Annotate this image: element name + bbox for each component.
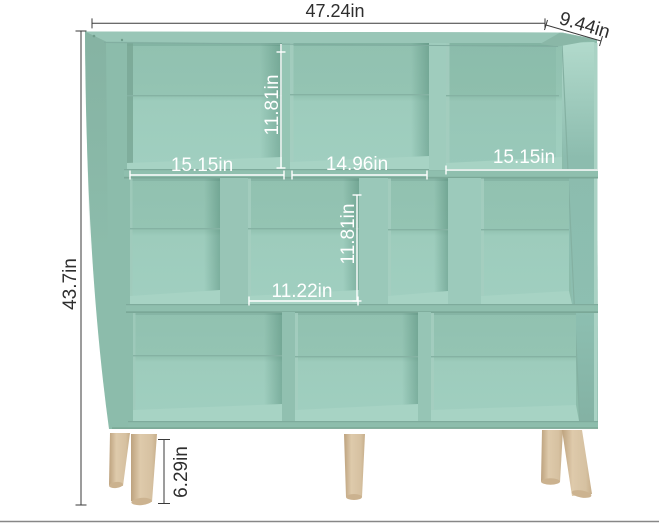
svg-text:11.81in: 11.81in (338, 204, 359, 265)
svg-text:11.22in: 11.22in (272, 281, 333, 302)
svg-text:15.15in: 15.15in (493, 147, 555, 168)
svg-text:47.24in: 47.24in (305, 1, 364, 21)
svg-text:15.15in: 15.15in (171, 155, 233, 176)
svg-text:43.7in: 43.7in (60, 258, 81, 310)
svg-text:6.29in: 6.29in (171, 446, 192, 498)
svg-text:11.81in: 11.81in (262, 75, 283, 136)
svg-text:14.96in: 14.96in (326, 154, 388, 175)
